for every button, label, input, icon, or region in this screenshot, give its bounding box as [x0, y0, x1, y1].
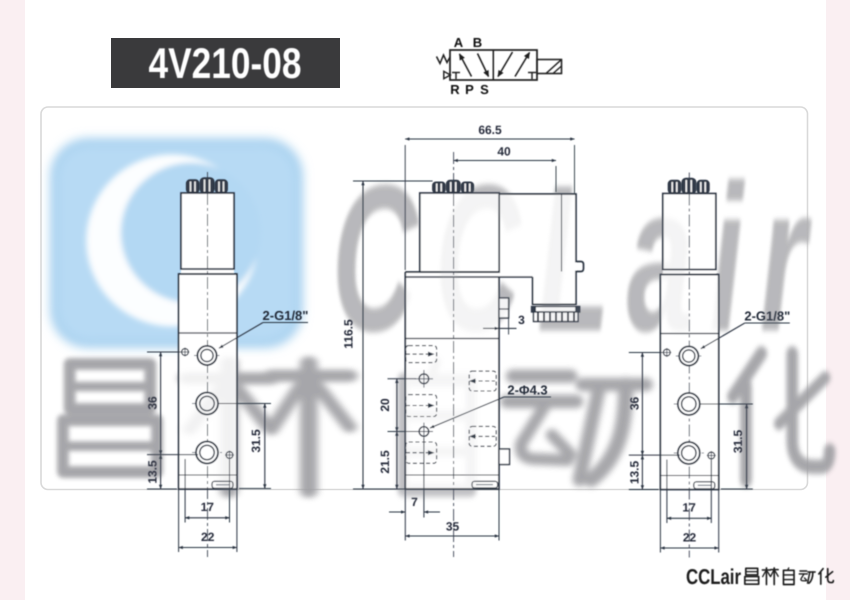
- svg-text:B: B: [473, 35, 482, 50]
- svg-text:66.5: 66.5: [478, 123, 502, 137]
- svg-text:7: 7: [411, 495, 418, 509]
- svg-text:CCLair: CCLair: [686, 565, 741, 589]
- svg-text:P: P: [465, 82, 474, 97]
- svg-text:21.5: 21.5: [378, 450, 392, 474]
- svg-text:31.5: 31.5: [249, 429, 263, 453]
- svg-text:A: A: [454, 35, 464, 50]
- svg-text:4V210-08: 4V210-08: [149, 40, 302, 88]
- svg-text:S: S: [480, 82, 489, 97]
- svg-text:R: R: [450, 82, 460, 97]
- svg-text:22: 22: [201, 530, 215, 544]
- svg-text:35: 35: [446, 520, 460, 534]
- svg-text:17: 17: [201, 500, 215, 514]
- svg-text:2-G1/8ʺ: 2-G1/8ʺ: [263, 308, 309, 323]
- svg-text:20: 20: [378, 398, 392, 412]
